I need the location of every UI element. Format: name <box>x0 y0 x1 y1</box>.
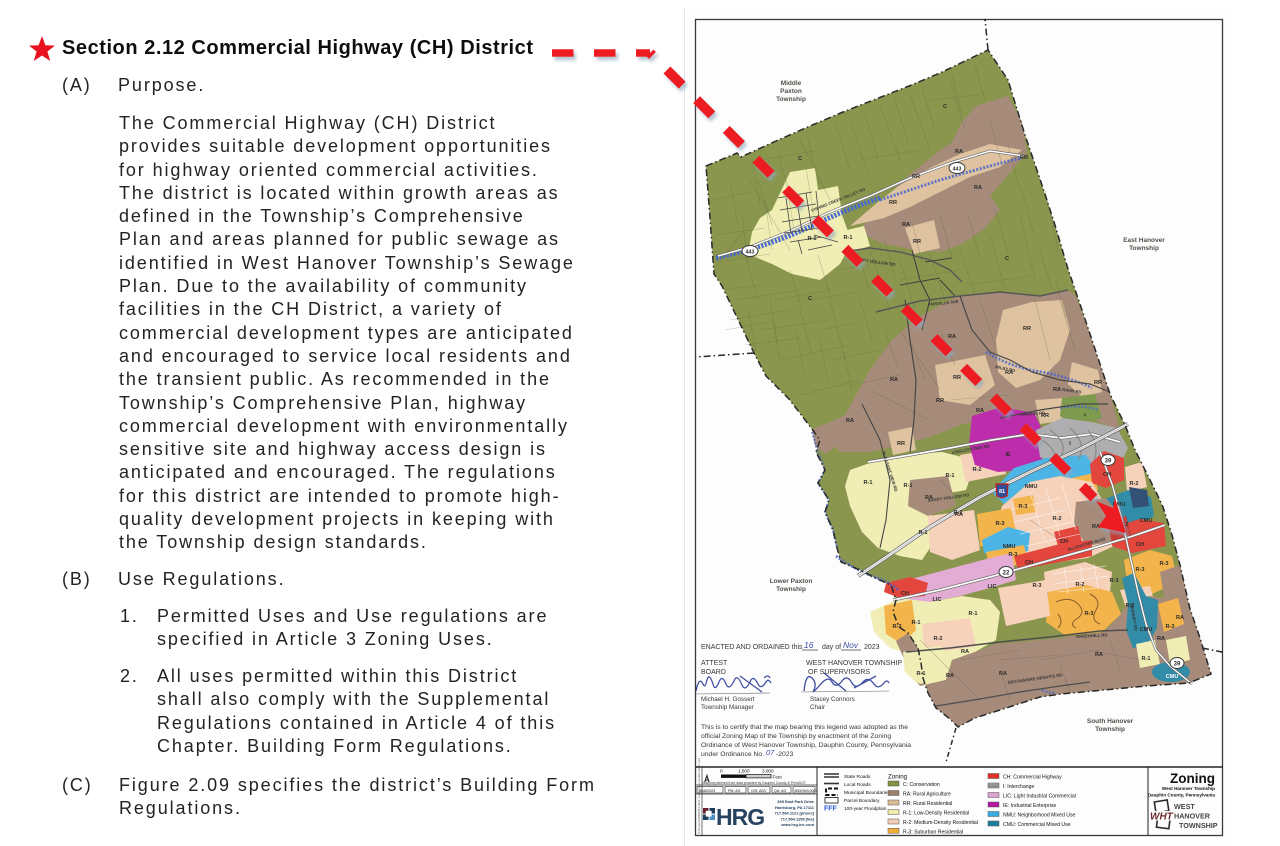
svg-text:Mapping derived from data prov: Mapping derived from data provided by Da… <box>703 781 807 785</box>
svg-text:FFF: FFF <box>824 806 838 813</box>
svg-text:PM: AG: PM: AG <box>728 789 741 793</box>
svg-text:R-2: Medium-Density Residentia: R-2: Medium-Density Residential <box>903 820 978 826</box>
svg-text:HRG: HRG <box>716 804 764 830</box>
svg-text:1,500: 1,500 <box>738 769 750 774</box>
svg-text:Parcel Boundary: Parcel Boundary <box>844 798 880 804</box>
svg-text:TOWNSHIP: TOWNSHIP <box>1179 821 1218 830</box>
svg-text:Feet: Feet <box>773 775 783 780</box>
svg-text:3,000: 3,000 <box>762 769 774 774</box>
svg-text:717.564.1158 [fax]: 717.564.1158 [fax] <box>781 816 815 821</box>
svg-text:Local Roads: Local Roads <box>844 782 871 788</box>
svg-text:IE: Industrial Enterprise: IE: Industrial Enterprise <box>1003 803 1056 809</box>
svg-text:www.hrg-inc.com: www.hrg-inc.com <box>780 822 814 827</box>
svg-text:Harrisburg, PA 17111: Harrisburg, PA 17111 <box>775 805 815 810</box>
svg-text:9/18/2023: 9/18/2023 <box>699 789 715 793</box>
svg-text:LIC: Light Industrial Commerci: LIC: Light Industrial Commercial <box>1003 794 1076 800</box>
svg-text:West Hanover Township: West Hanover Township <box>1162 786 1215 791</box>
svg-text:I: Interchange: I: Interchange <box>1003 784 1034 790</box>
svg-text:8000943.0001: 8000943.0001 <box>795 789 818 793</box>
svg-text:717.564.1121 [phone]: 717.564.1121 [phone] <box>774 811 814 816</box>
svg-text:CH: Commercial Highway: CH: Commercial Highway <box>1003 775 1062 781</box>
svg-text:State Roads: State Roads <box>844 774 871 780</box>
svg-text:R-1: Low-Density Residential: R-1: Low-Density Residential <box>903 811 969 817</box>
svg-text:C: Conservation: C: Conservation <box>903 782 940 788</box>
svg-text:CMU: Commercial Mixed Use: CMU: Commercial Mixed Use <box>1003 822 1071 828</box>
svg-text:RR: Rural Residential: RR: Rural Residential <box>903 801 952 807</box>
svg-text:QA: AG: QA: AG <box>774 789 786 793</box>
svg-text:Municipal Boundaries: Municipal Boundaries <box>844 790 890 796</box>
svg-text:369 East Park Drive: 369 East Park Drive <box>777 799 815 804</box>
svg-text:Zoning: Zoning <box>888 774 908 781</box>
svg-text:Zoning: Zoning <box>1170 771 1215 786</box>
svg-text:GIS: ADV: GIS: ADV <box>751 789 767 793</box>
svg-text:Dauphin County, Pennsylvania: Dauphin County, Pennsylvania <box>1148 793 1216 798</box>
svg-text:WEST: WEST <box>1174 802 1195 811</box>
svg-text:R-3: Suburban Residential: R-3: Suburban Residential <box>903 829 963 835</box>
svg-text:WHT: WHT <box>1150 812 1174 823</box>
svg-text:NMU: Neighborhood Mixed Use: NMU: Neighborhood Mixed Use <box>1003 813 1076 819</box>
svg-text:0: 0 <box>720 769 723 774</box>
svg-text:HANOVER: HANOVER <box>1174 812 1211 821</box>
svg-text:RA: Rural Agriculture: RA: Rural Agriculture <box>903 792 951 798</box>
svg-text:100-year Floodplain: 100-year Floodplain <box>844 806 887 812</box>
svg-text:S:\Projects\8000943 WHT Zoning: S:\Projects\8000943 WHT Zoning Map Updat… <box>697 758 701 834</box>
